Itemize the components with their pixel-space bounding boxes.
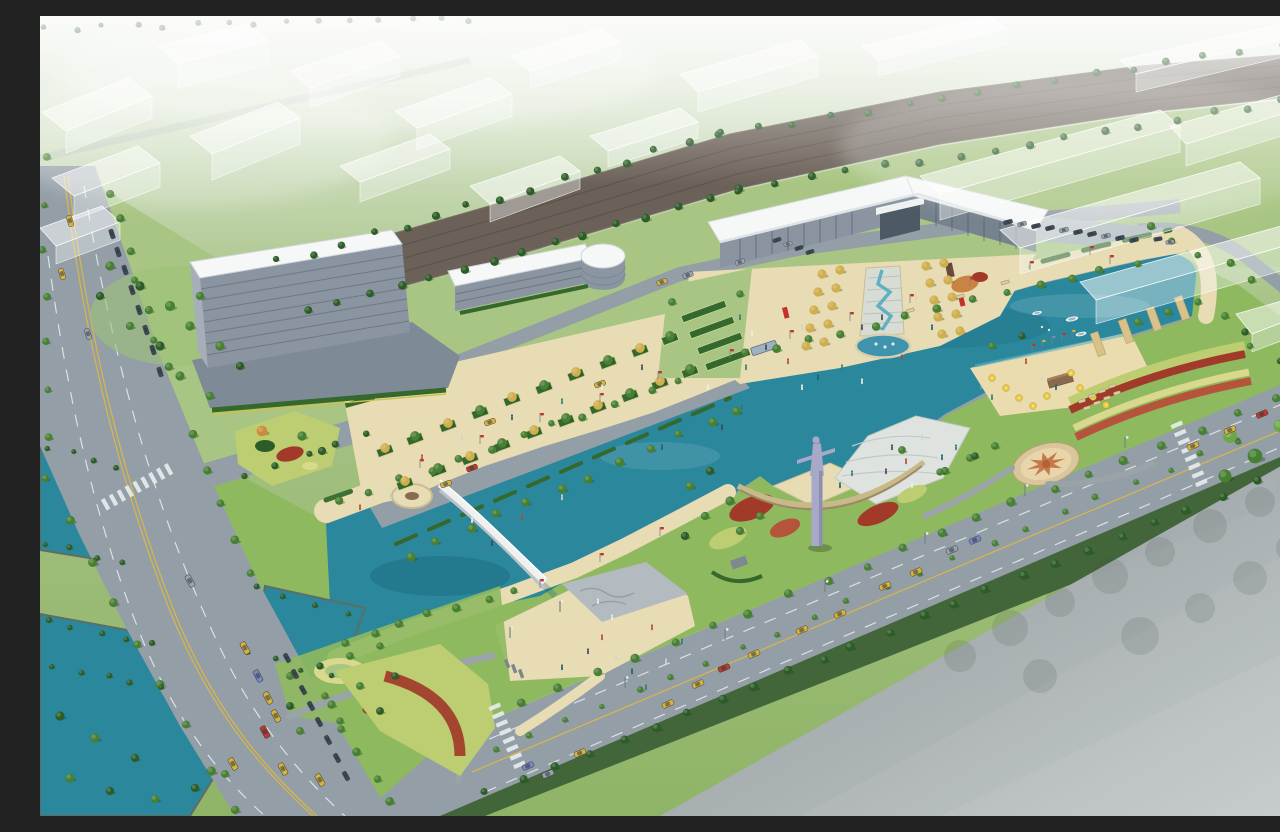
aerial-rendering: Aerial architectural rendering of a rive… bbox=[40, 16, 1280, 816]
haze bbox=[40, 16, 1280, 216]
